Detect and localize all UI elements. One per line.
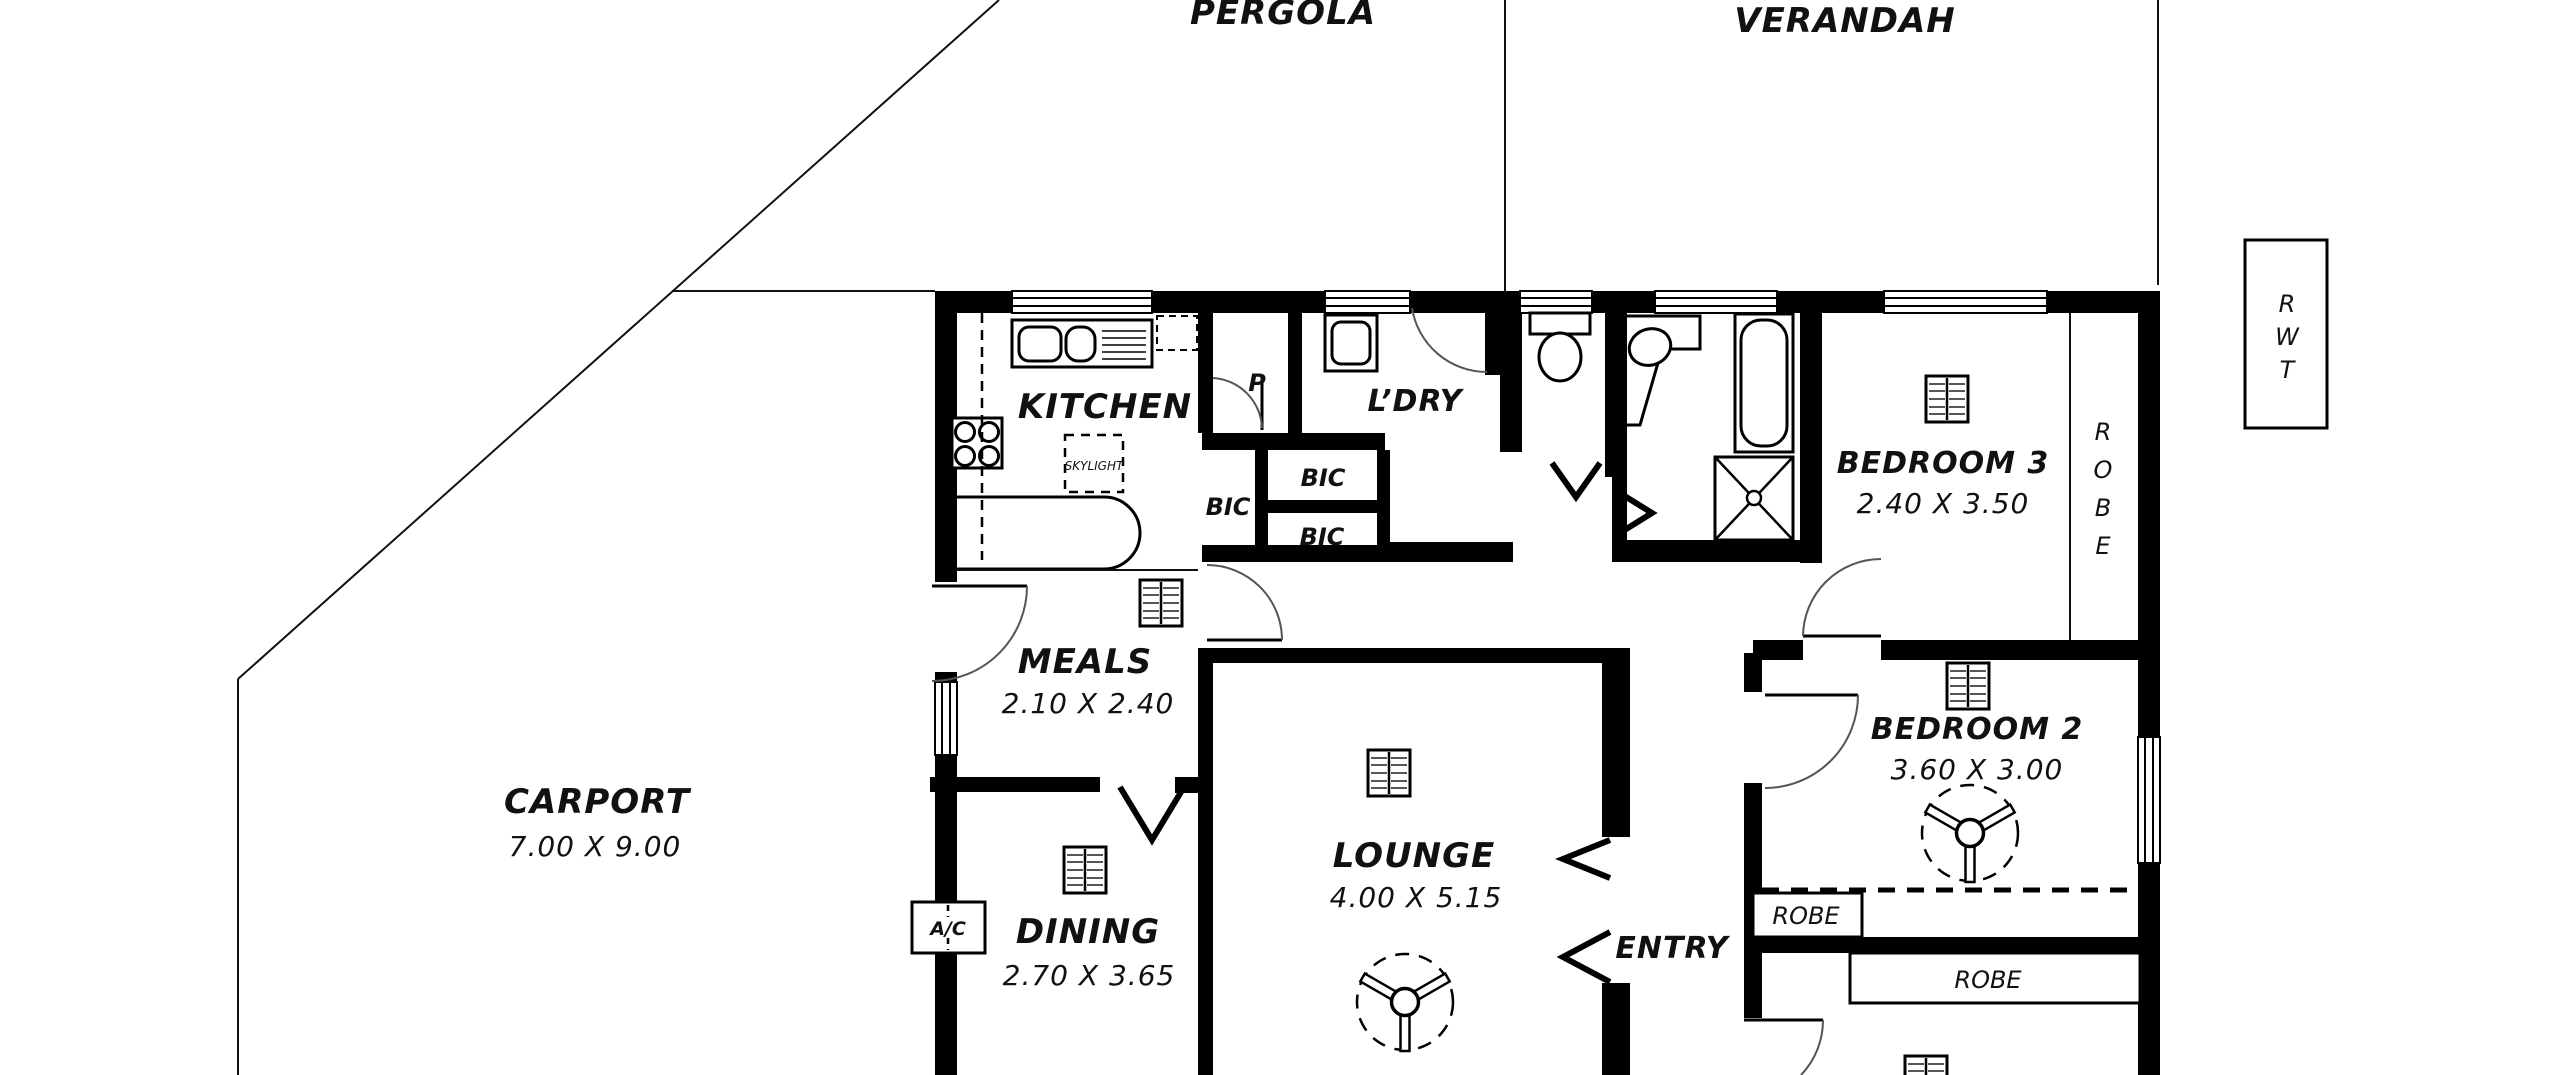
window-bedroom3	[1884, 291, 2047, 313]
svg-text:B: B	[2095, 494, 2111, 522]
window-meals-west	[935, 682, 957, 755]
label-entry: ENTRY	[1615, 931, 1730, 966]
robe-label: ROBE	[1772, 902, 1840, 930]
label-carport-dims: 7.00 X 9.00	[509, 830, 682, 863]
rwt-letter: W	[2275, 323, 2300, 351]
label-carport: CARPORT	[504, 782, 692, 822]
label-lounge: LOUNGE	[1333, 836, 1496, 876]
shower-icon	[1715, 457, 1793, 540]
laundry-trough-icon	[1325, 315, 1377, 371]
label-bedroom2: BEDROOM 2	[1871, 712, 2084, 747]
sink-icon	[1012, 320, 1152, 367]
heat-vent-bedroom1	[1905, 1056, 1947, 1075]
label-pergola: PERGOLA	[1190, 0, 1376, 33]
label-meals: MEALS	[1018, 642, 1153, 682]
window-bathroom	[1655, 291, 1777, 313]
label-pantry: P	[1248, 369, 1266, 397]
window-bedroom2-east	[2138, 737, 2160, 863]
label-bic-top: BIC	[1301, 464, 1346, 492]
label-kitchen: KITCHEN	[1018, 387, 1192, 427]
rainwater-tank: R W T	[2245, 240, 2327, 428]
label-meals-dims: 2.10 X 2.40	[1002, 687, 1175, 720]
label-dining-dims: 2.70 X 3.65	[1003, 959, 1176, 992]
heat-vent-bedroom3	[1926, 376, 1968, 422]
paper-background	[0, 0, 2560, 1075]
rwt-letter: R	[2279, 290, 2296, 318]
ac-label: A/C	[928, 918, 966, 940]
heat-vent-meals	[1140, 580, 1182, 626]
label-bedroom3-dims: 2.40 X 3.50	[1857, 487, 2030, 520]
label-bedroom2-dims: 3.60 X 3.00	[1891, 753, 2064, 786]
label-lounge-dims: 4.00 X 5.15	[1330, 881, 1503, 914]
robe-box-lower: ROBE	[1850, 953, 2140, 1003]
window-wc	[1520, 291, 1592, 313]
bathtub-icon	[1735, 314, 1793, 452]
robe-label: ROBE	[1954, 966, 2022, 994]
label-bic-left: BIC	[1206, 493, 1251, 521]
robe-box-bedroom2: ROBE	[1753, 893, 1862, 937]
label-bedroom3: BEDROOM 3	[1837, 446, 2050, 481]
label-verandah: VERANDAH	[1734, 1, 1955, 41]
heat-vent-bedroom2	[1947, 663, 1989, 709]
rwt-letter: T	[2280, 356, 2297, 384]
svg-text:O: O	[2094, 456, 2113, 484]
stove-icon	[952, 418, 1002, 468]
window-laundry	[1325, 291, 1410, 313]
label-bic-bottom: BIC	[1300, 523, 1345, 551]
ac-unit: A/C	[912, 902, 985, 953]
svg-text:E: E	[2095, 532, 2111, 560]
window-kitchen-sink	[1012, 291, 1152, 313]
heat-vent-lounge	[1368, 750, 1410, 796]
svg-text:R: R	[2095, 418, 2112, 446]
label-dining: DINING	[1016, 912, 1160, 952]
floor-plan: SKYLIGHT	[0, 0, 2560, 1075]
label-laundry: L’DRY	[1367, 384, 1464, 419]
wall-openings	[935, 582, 957, 672]
skylight-label: SKYLIGHT	[1065, 459, 1125, 473]
heat-vent-dining	[1064, 847, 1106, 893]
